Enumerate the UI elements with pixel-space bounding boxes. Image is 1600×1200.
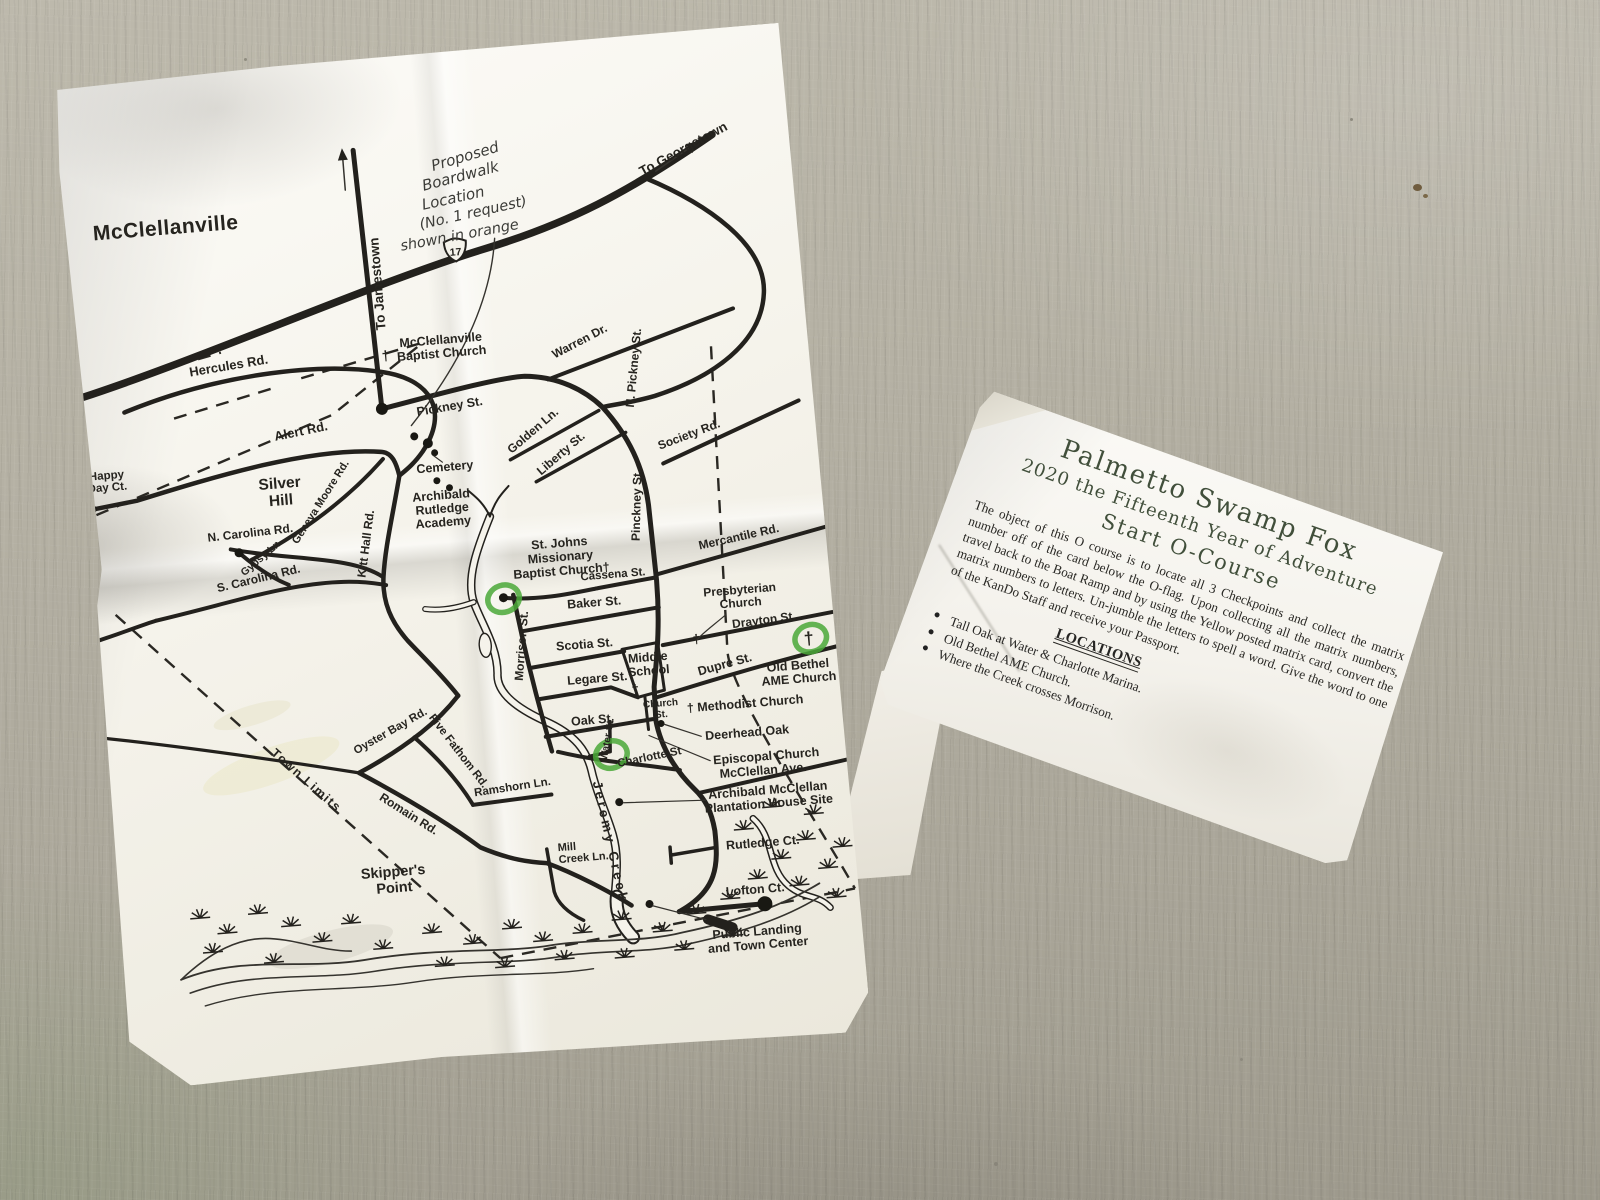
bullet-icon bbox=[922, 645, 928, 651]
map-label: † bbox=[692, 631, 700, 647]
map-label: Liberty St. bbox=[534, 429, 588, 478]
floor-crumb bbox=[1413, 184, 1422, 191]
route-shield-number: 17 bbox=[449, 246, 462, 259]
map-label: Legare St. bbox=[567, 669, 628, 688]
map-label: Alert Rd. bbox=[273, 418, 329, 444]
map-label: Warren Dr. bbox=[550, 321, 610, 361]
map-label: Rutledge Ct. bbox=[726, 833, 800, 853]
map-label: Drayton St. bbox=[731, 609, 796, 631]
marsh-grass-icon bbox=[614, 947, 635, 958]
marsh-grass-icon bbox=[494, 957, 515, 968]
floor-speck bbox=[1350, 118, 1353, 121]
map-label: PresbyterianChurch bbox=[703, 580, 778, 613]
photo-scene: 17 McClellanvilleTo JamestownTo Georgeto… bbox=[0, 0, 1600, 1200]
map-label: Cemetery bbox=[416, 458, 474, 477]
bullet-icon bbox=[934, 611, 940, 617]
map-label: Pinckney St. bbox=[629, 469, 645, 541]
o-course-instruction-card: Palmetto Swamp Fox 2020 the Fifteenth Ye… bbox=[873, 388, 1456, 870]
bullet-icon bbox=[928, 628, 934, 634]
map-label: Five Fathom Rd. bbox=[426, 712, 490, 790]
map-label: † bbox=[381, 347, 390, 364]
map-label: SilverHill bbox=[258, 474, 303, 511]
map-label: Oyster Bay Rd. bbox=[352, 706, 430, 757]
map-label: † Methodist Church bbox=[686, 692, 803, 715]
floor-crumb bbox=[1423, 194, 1428, 198]
marsh-grass-icon bbox=[340, 913, 361, 924]
marsh-grass-icon bbox=[832, 837, 853, 848]
floor-speck bbox=[1240, 1058, 1243, 1061]
map-label: Society Rd. bbox=[656, 416, 722, 452]
map-label: † bbox=[803, 628, 815, 649]
floor-speck bbox=[244, 58, 247, 61]
marsh-grass-icon bbox=[747, 868, 768, 879]
map-label: Kitt Hall Rd. bbox=[354, 509, 377, 578]
map-label: McClellanvilleBaptist Church bbox=[395, 329, 487, 364]
floor-speck bbox=[994, 1162, 998, 1166]
marsh-grass-icon bbox=[501, 918, 522, 929]
map-label: McClellanville bbox=[92, 211, 239, 246]
map-label: Deerhead Oak bbox=[705, 722, 790, 743]
marsh-grass-icon bbox=[280, 916, 301, 927]
marsh-grass-icon bbox=[532, 931, 553, 942]
map-label: Skipper'sPoint bbox=[360, 862, 427, 899]
folded-town-map: 17 McClellanvilleTo JamestownTo Georgeto… bbox=[51, 22, 872, 1090]
marsh-grass-icon bbox=[421, 923, 442, 934]
map-drawing: 17 McClellanvilleTo JamestownTo Georgeto… bbox=[51, 22, 872, 1090]
marsh-grass-icon bbox=[817, 858, 838, 869]
marsh-grass-icon bbox=[247, 904, 268, 915]
marsh-grass-icon bbox=[190, 908, 211, 919]
map-label: Mercantile Rd. bbox=[697, 521, 780, 553]
map-label: HappyDay Ct. bbox=[86, 469, 127, 496]
map-label: Baker St. bbox=[567, 593, 622, 611]
map-label: † bbox=[631, 681, 639, 697]
map-label: To Georgetown bbox=[637, 119, 730, 179]
paper-smudges bbox=[192, 687, 399, 983]
map-label: Dupre St. bbox=[696, 650, 753, 678]
map-label: MillCreek Ln. bbox=[557, 838, 609, 866]
jamestown-arrow-icon bbox=[337, 148, 348, 161]
marsh-grass-icon bbox=[202, 942, 223, 953]
marsh-grass-icon bbox=[217, 923, 238, 934]
map-label: Scotia St. bbox=[556, 635, 614, 654]
map-label: ArchibaldRutledgeAcademy bbox=[412, 486, 473, 531]
map-label: Lofton Ct. bbox=[725, 880, 785, 899]
map-label: Geneva Moore Rd. bbox=[290, 458, 352, 546]
map-label: N. Pickney St. bbox=[623, 328, 644, 408]
marsh-grass-icon bbox=[572, 923, 593, 934]
map-label: Old BethelAME Church bbox=[760, 655, 837, 688]
map-label: MiddleSchool bbox=[626, 649, 670, 680]
